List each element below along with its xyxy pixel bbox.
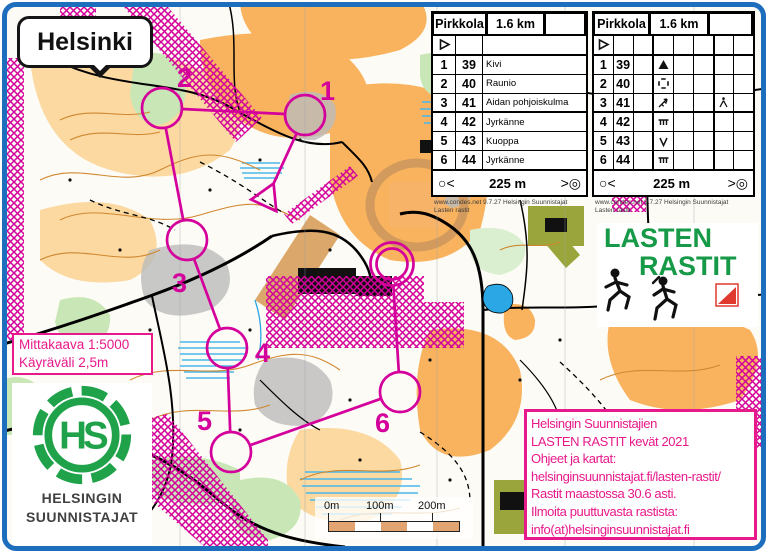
- control-number-2: 2: [177, 63, 192, 93]
- info-line-url: helsinginsuunnistajat.fi/lasten-rastit/: [531, 468, 750, 486]
- ruin-icon: [657, 77, 670, 90]
- control-description-sheet-text: Pirkkola 1.6 km 1 39 Kivi 2 40 Raunio 3 …: [431, 11, 588, 197]
- control-number-3: 3: [172, 268, 187, 298]
- hs-monogram: HS: [59, 414, 108, 457]
- control-flag-icon: [715, 283, 739, 307]
- course-name: Pirkkola: [593, 12, 650, 36]
- control-row: 2 40 Raunio: [433, 75, 586, 94]
- scale-text: Mittakaava 1:5000: [19, 336, 146, 354]
- scale-bar-segments: [328, 521, 460, 532]
- map-credits: www.condes.net 9.7.27 Helsingin Suunnist…: [434, 199, 584, 214]
- contour-interval-text: Käyräväli 2,5m: [19, 354, 146, 372]
- control-row: 6 44 Jyrkänne: [433, 151, 586, 169]
- control-number-4: 4: [255, 338, 270, 368]
- pit-icon: [657, 135, 670, 148]
- finish-funnel-start-icon: ○<: [599, 176, 616, 190]
- hs-emblem-icon: HS: [30, 383, 134, 487]
- info-line: Helsingin Suunnistajien: [531, 415, 750, 433]
- course-length: 1.6 km: [486, 12, 545, 36]
- control-description: Kuoppa: [483, 132, 586, 150]
- finish-funnel-start-icon: ○<: [438, 176, 455, 190]
- cliff-icon: [657, 116, 670, 129]
- logo-line1: LASTEN: [604, 223, 712, 254]
- control-row: 4 42: [594, 113, 753, 132]
- fence-corner-icon: [657, 96, 670, 109]
- control-row: 3 41 Aidan pohjoiskulma: [433, 94, 586, 114]
- course-length: 1.6 km: [649, 12, 709, 36]
- finish-distance: 225 m: [653, 176, 690, 191]
- start-row: [594, 36, 753, 56]
- control-row: 2 40: [594, 75, 753, 94]
- junction-icon: [717, 96, 730, 109]
- control-row: 6 44: [594, 151, 753, 169]
- control-number-5: 5: [197, 406, 212, 436]
- control-row: 5 43: [594, 132, 753, 151]
- start-triangle-icon: [597, 38, 610, 51]
- region-label: Helsinki: [20, 19, 150, 65]
- scale-label-100: 100m: [366, 500, 394, 512]
- control-row: 1 39: [594, 56, 753, 75]
- control-description: Jyrkänne: [483, 113, 586, 131]
- info-line: Ohjeet ja kartat:: [531, 450, 750, 468]
- sheet-header: Pirkkola 1.6 km: [433, 13, 586, 36]
- info-line: LASTEN RASTIT kevät 2021: [531, 433, 750, 451]
- control-description: Raunio: [483, 75, 586, 93]
- header-blank-cell: [708, 12, 753, 36]
- running-children-icon: [597, 267, 707, 327]
- sheet-header: Pirkkola 1.6 km: [594, 13, 753, 36]
- start-cell: [433, 36, 456, 54]
- finish-distance: 225 m: [489, 176, 526, 191]
- control-description-sheet-symbols: Pirkkola 1.6 km 1 39: [592, 11, 755, 197]
- finish-funnel-end-icon: >◎: [561, 176, 581, 190]
- info-line-email: info(at)helsinginsuunnistajat.fi: [531, 521, 750, 539]
- course-name: Pirkkola: [432, 12, 487, 36]
- finish-row: ○< 225 m >◎: [594, 169, 753, 195]
- control-row: 5 43 Kuoppa: [433, 132, 586, 151]
- poster: 1 2 3 4 5 6 Helsinki Pirkkola 1.6 km: [0, 0, 768, 553]
- hs-club-logo: HS HELSINGIN SUUNNISTAJAT: [12, 383, 152, 545]
- control-description: Jyrkänne: [483, 151, 586, 169]
- finish-funnel-end-icon: >◎: [728, 176, 748, 190]
- info-line: Ilmoita puuttuvasta rastista:: [531, 503, 750, 521]
- lasten-rastit-logo: LASTEN RASTIT: [597, 223, 758, 327]
- header-blank-cell: [544, 12, 586, 36]
- info-line: Rastit maastossa 30.6 asti.: [531, 485, 750, 503]
- region-callout: Helsinki: [17, 16, 153, 68]
- control-number-6: 6: [375, 408, 390, 438]
- scale-bar: 0m 100m 200m: [315, 497, 473, 539]
- map-credits: www.condes.net 9.7.27 Helsingin Suunnist…: [595, 199, 755, 214]
- event-info-box: Helsingin Suunnistajien LASTEN RASTIT ke…: [524, 409, 757, 540]
- scale-label-200: 200m: [418, 500, 446, 512]
- cliff-icon: [657, 154, 670, 167]
- control-row: 1 39 Kivi: [433, 56, 586, 75]
- start-cell: [594, 36, 614, 54]
- club-name: HELSINGIN SUUNNISTAJAT: [26, 489, 138, 527]
- finish-row: ○< 225 m >◎: [433, 169, 586, 195]
- map-scale-box: Mittakaava 1:5000 Käyräväli 2,5m: [12, 333, 153, 375]
- start-row: [433, 36, 586, 56]
- scale-label-0: 0m: [324, 500, 339, 512]
- control-description: Aidan pohjoiskulma: [483, 94, 586, 112]
- start-triangle-icon: [438, 38, 451, 51]
- control-number-1: 1: [320, 76, 335, 106]
- boulder-icon: [657, 58, 670, 71]
- control-row: 3 41: [594, 94, 753, 114]
- control-description: Kivi: [483, 56, 586, 74]
- control-row: 4 42 Jyrkänne: [433, 113, 586, 132]
